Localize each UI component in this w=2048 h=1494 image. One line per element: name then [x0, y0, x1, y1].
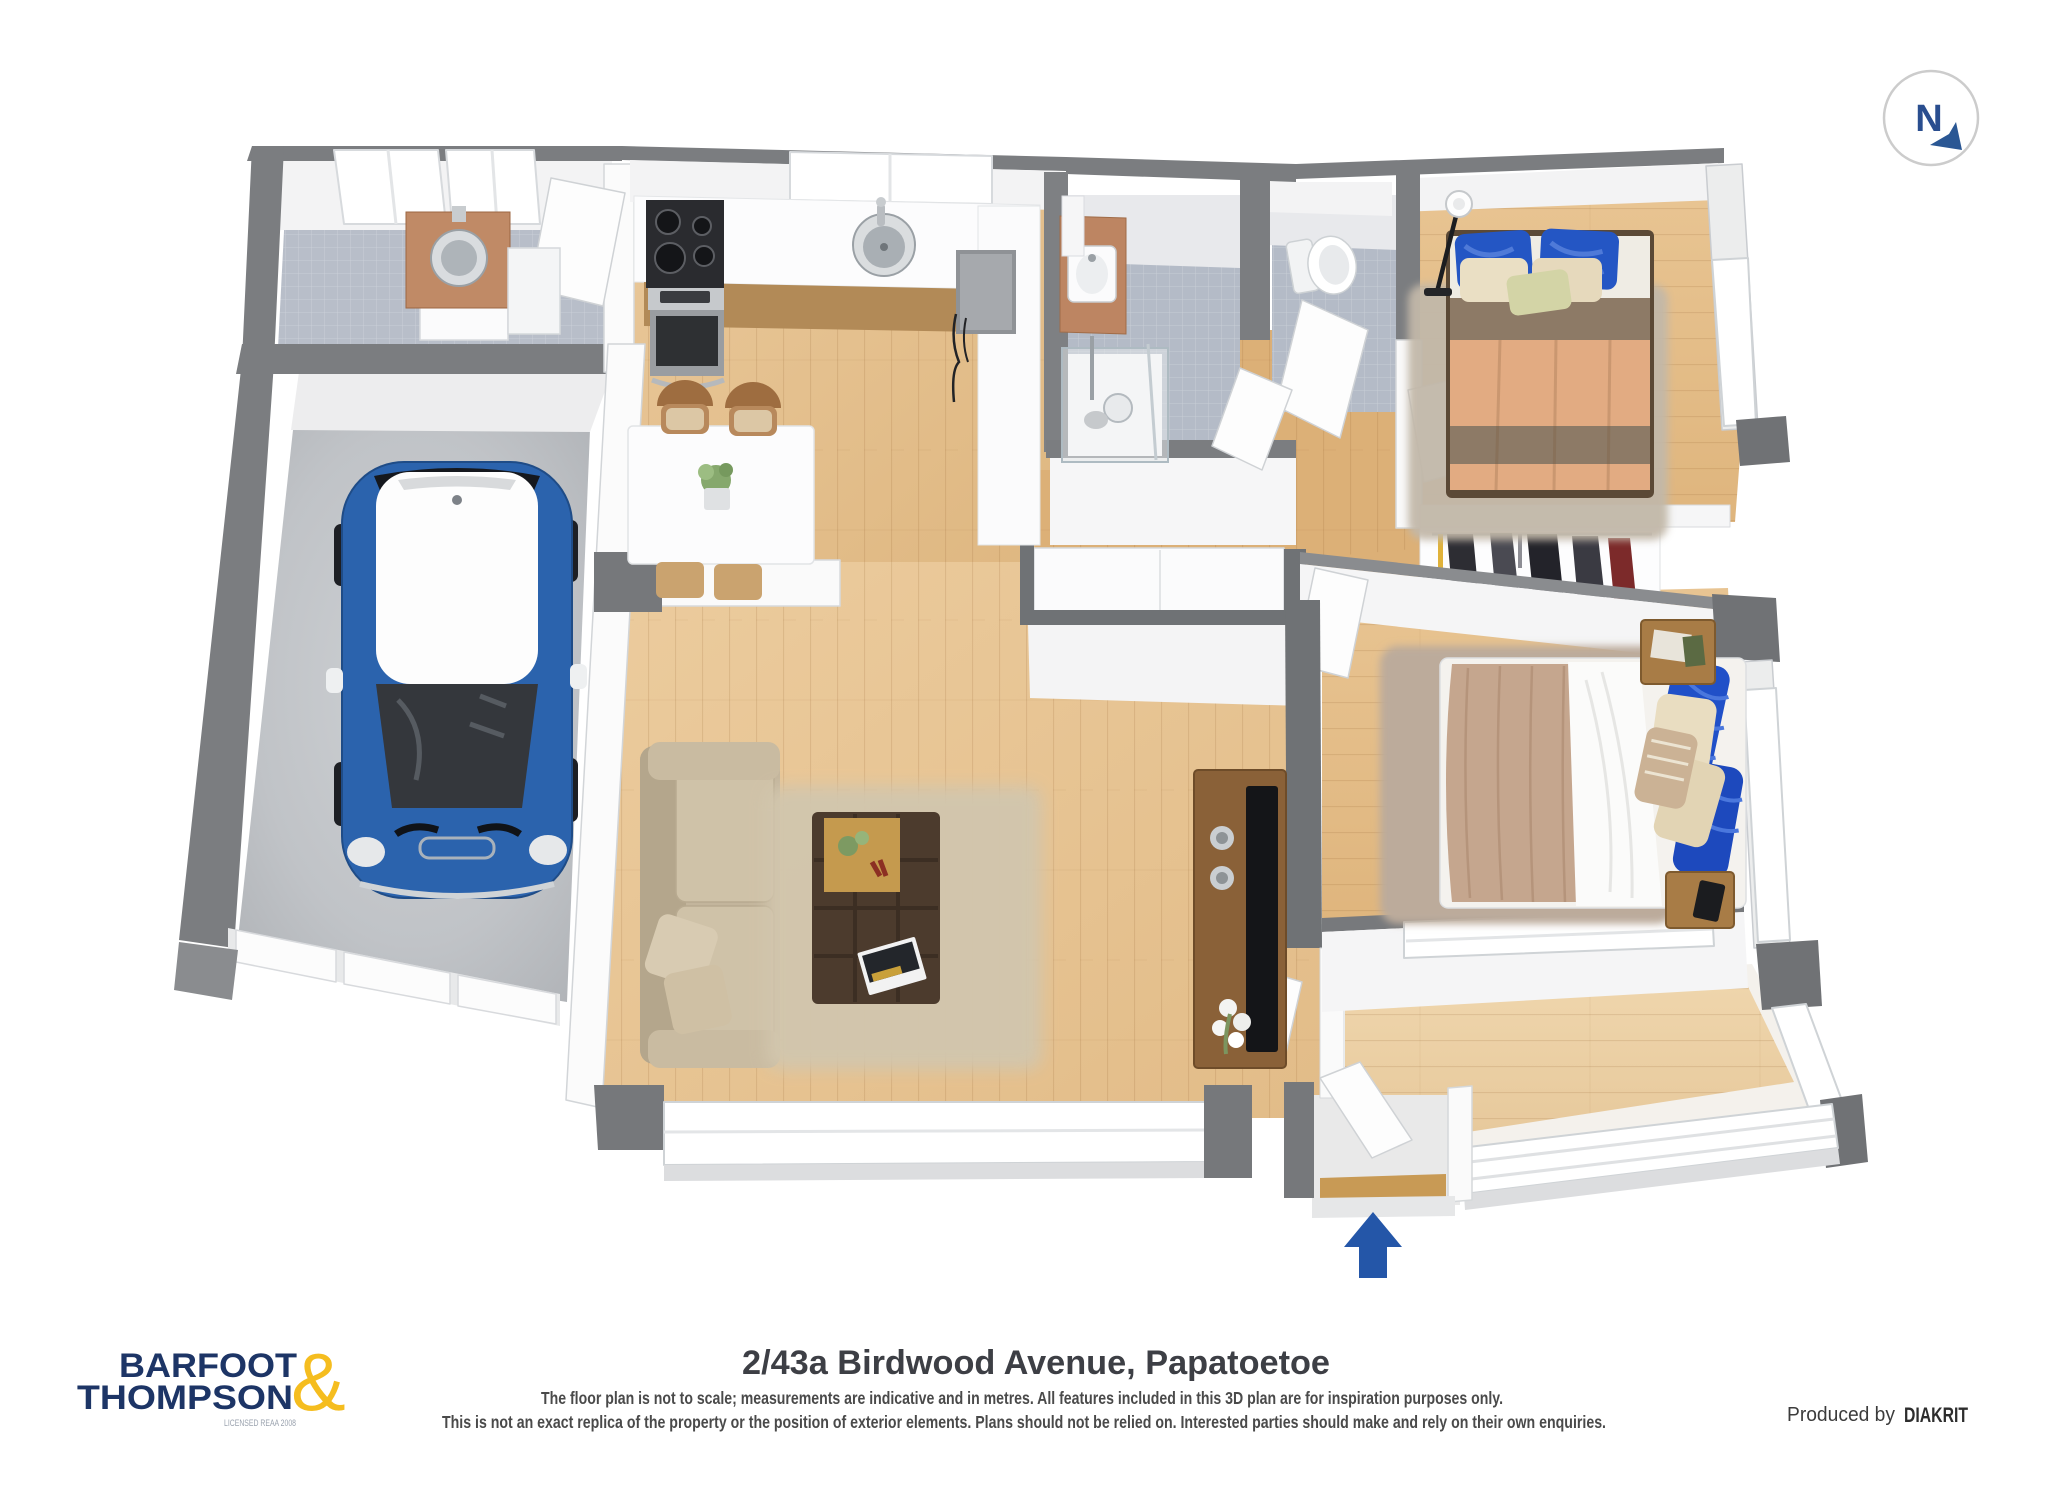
svg-text:The floor plan is not to scale: The floor plan is not to scale; measurem… — [541, 1388, 1503, 1408]
svg-text:N: N — [1915, 98, 1942, 140]
svg-text:DIAKRIT: DIAKRIT — [1904, 1404, 1968, 1427]
svg-text:2/43a Birdwood Avenue, Papatoe: 2/43a Birdwood Avenue, Papatoetoe — [742, 1344, 1330, 1382]
svg-text:Produced by: Produced by — [1787, 1404, 1895, 1426]
svg-text:&: & — [291, 1337, 346, 1428]
svg-text:THOMPSON: THOMPSON — [77, 1379, 293, 1417]
svg-text:This is not an exact replica o: This is not an exact replica of the prop… — [442, 1412, 1606, 1432]
svg-text:LICENSED REAA 2008: LICENSED REAA 2008 — [224, 1418, 296, 1428]
